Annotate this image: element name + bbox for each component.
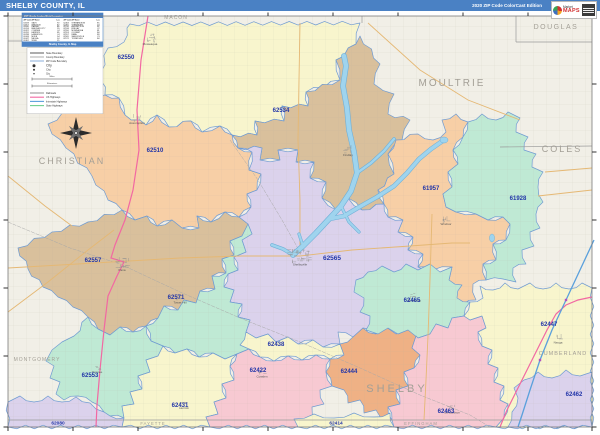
city-label: Neoga [554, 341, 563, 345]
county-label-effingham: EFFINGHAM [404, 421, 438, 426]
zip-label-62422: 62422 [250, 368, 267, 374]
county-label-shelby: SHELBY [366, 383, 427, 395]
county-label-cumberland: CUMBERLAND [539, 351, 588, 357]
city-label: Assumption [129, 121, 145, 125]
city-label: Findlay [343, 153, 353, 157]
svg-text:ZIP Name: ZIP Name [32, 20, 40, 22]
zip-label-62557: 62557 [85, 258, 102, 264]
scale-miles-label: Miles [49, 76, 55, 78]
zip-label-62463: 62463 [438, 409, 455, 415]
zip-label-62565: 62565 [323, 255, 341, 262]
svg-text:ZIP Name: ZIP Name [72, 20, 80, 22]
svg-text:Loc: Loc [57, 20, 60, 22]
edition-label: 2020 ZIP Code ColorCast Edition [472, 3, 542, 8]
city-label: Tower Hill [173, 301, 186, 305]
pond [440, 137, 448, 143]
city-label: Cowden [256, 375, 267, 379]
interstate-exit-marker [539, 359, 541, 361]
zip-label-62438: 62438 [268, 342, 285, 348]
city-label: Windsor [440, 222, 451, 226]
zip-label-61957: 61957 [423, 186, 440, 192]
county-label-douglas: DOUGLAS [534, 24, 579, 31]
interstate-exit-marker [565, 299, 567, 301]
city-label: Moweaqua [143, 42, 158, 46]
county-map-canvas: MoweaquaAssumptionFindlayShelbyvillePana… [0, 0, 600, 435]
zip-index-panel: ZIP Code Index/Grid Locator ZIP CodeZIP … [22, 13, 103, 47]
zip-label-62534: 62534 [273, 108, 290, 114]
county-label-montgomery: MONTGOMERY [14, 357, 61, 363]
svg-text:ZIP Code: ZIP Code [24, 20, 32, 22]
scale-km-label: Kilometers [47, 82, 58, 85]
zip-label-62510: 62510 [147, 148, 164, 154]
county-label-moultrie: MOULTRIE [419, 78, 486, 89]
legend-road-label: US Highways [46, 96, 61, 99]
zip-label-62414: 62414 [329, 421, 343, 427]
svg-text:TOWER HILL: TOWER HILL [72, 38, 84, 40]
svg-text:B4: B4 [97, 38, 99, 40]
svg-text:62571: 62571 [64, 38, 69, 40]
zip-label-62447: 62447 [541, 322, 558, 328]
legend-panel: State BoundaryCounty BoundaryZIP Code Bo… [27, 48, 103, 114]
zip-label-62550: 62550 [118, 55, 135, 61]
zip-label-62571: 62571 [168, 295, 185, 301]
svg-text:ZIP Code: ZIP Code [64, 20, 72, 22]
svg-text:Loc: Loc [97, 20, 100, 22]
pond [490, 234, 495, 242]
logo-badge [582, 4, 595, 16]
zip-label-62444: 62444 [341, 369, 358, 375]
legend-road-label: Interstate Highways [46, 100, 68, 103]
county-label-coles: COLES [542, 144, 583, 154]
logo-text: Market MAPS [563, 6, 580, 15]
city-label: Pana [118, 268, 125, 272]
zip-label-62431: 62431 [172, 403, 189, 409]
legend-city-label: City [46, 68, 51, 72]
logo-maps-label: MAPS [563, 9, 580, 15]
zip-label-61928: 61928 [510, 196, 527, 202]
brand-logo: Market MAPS [551, 1, 597, 19]
city-label: Shelbyville [293, 263, 308, 267]
legend-road-label: Railroads [46, 92, 57, 95]
county-label-fayette: FAYETTE [140, 421, 165, 426]
header-bar: SHELBY COUNTY, IL 2020 ZIP Code ColorCas… [0, 0, 600, 11]
county-label-christian: CHRISTIAN [39, 156, 106, 166]
zip-label-62553: 62553 [82, 373, 99, 379]
logo-pie-icon [553, 6, 562, 15]
zip-label-62465: 62465 [404, 298, 421, 304]
zip-index-footer: Shelby County, IL Map [49, 42, 77, 46]
legend-boundary-label: County Boundary [46, 56, 65, 59]
legend-boundary-label: State Boundary [46, 52, 63, 55]
zip-label-62080: 62080 [51, 421, 65, 427]
page-title: SHELBY COUNTY, IL [6, 1, 85, 10]
zip-label-62462: 62462 [566, 392, 583, 398]
map-page: SHELBY COUNTY, IL 2020 ZIP Code ColorCas… [0, 0, 600, 435]
legend-road-label: State Highways [46, 105, 63, 108]
